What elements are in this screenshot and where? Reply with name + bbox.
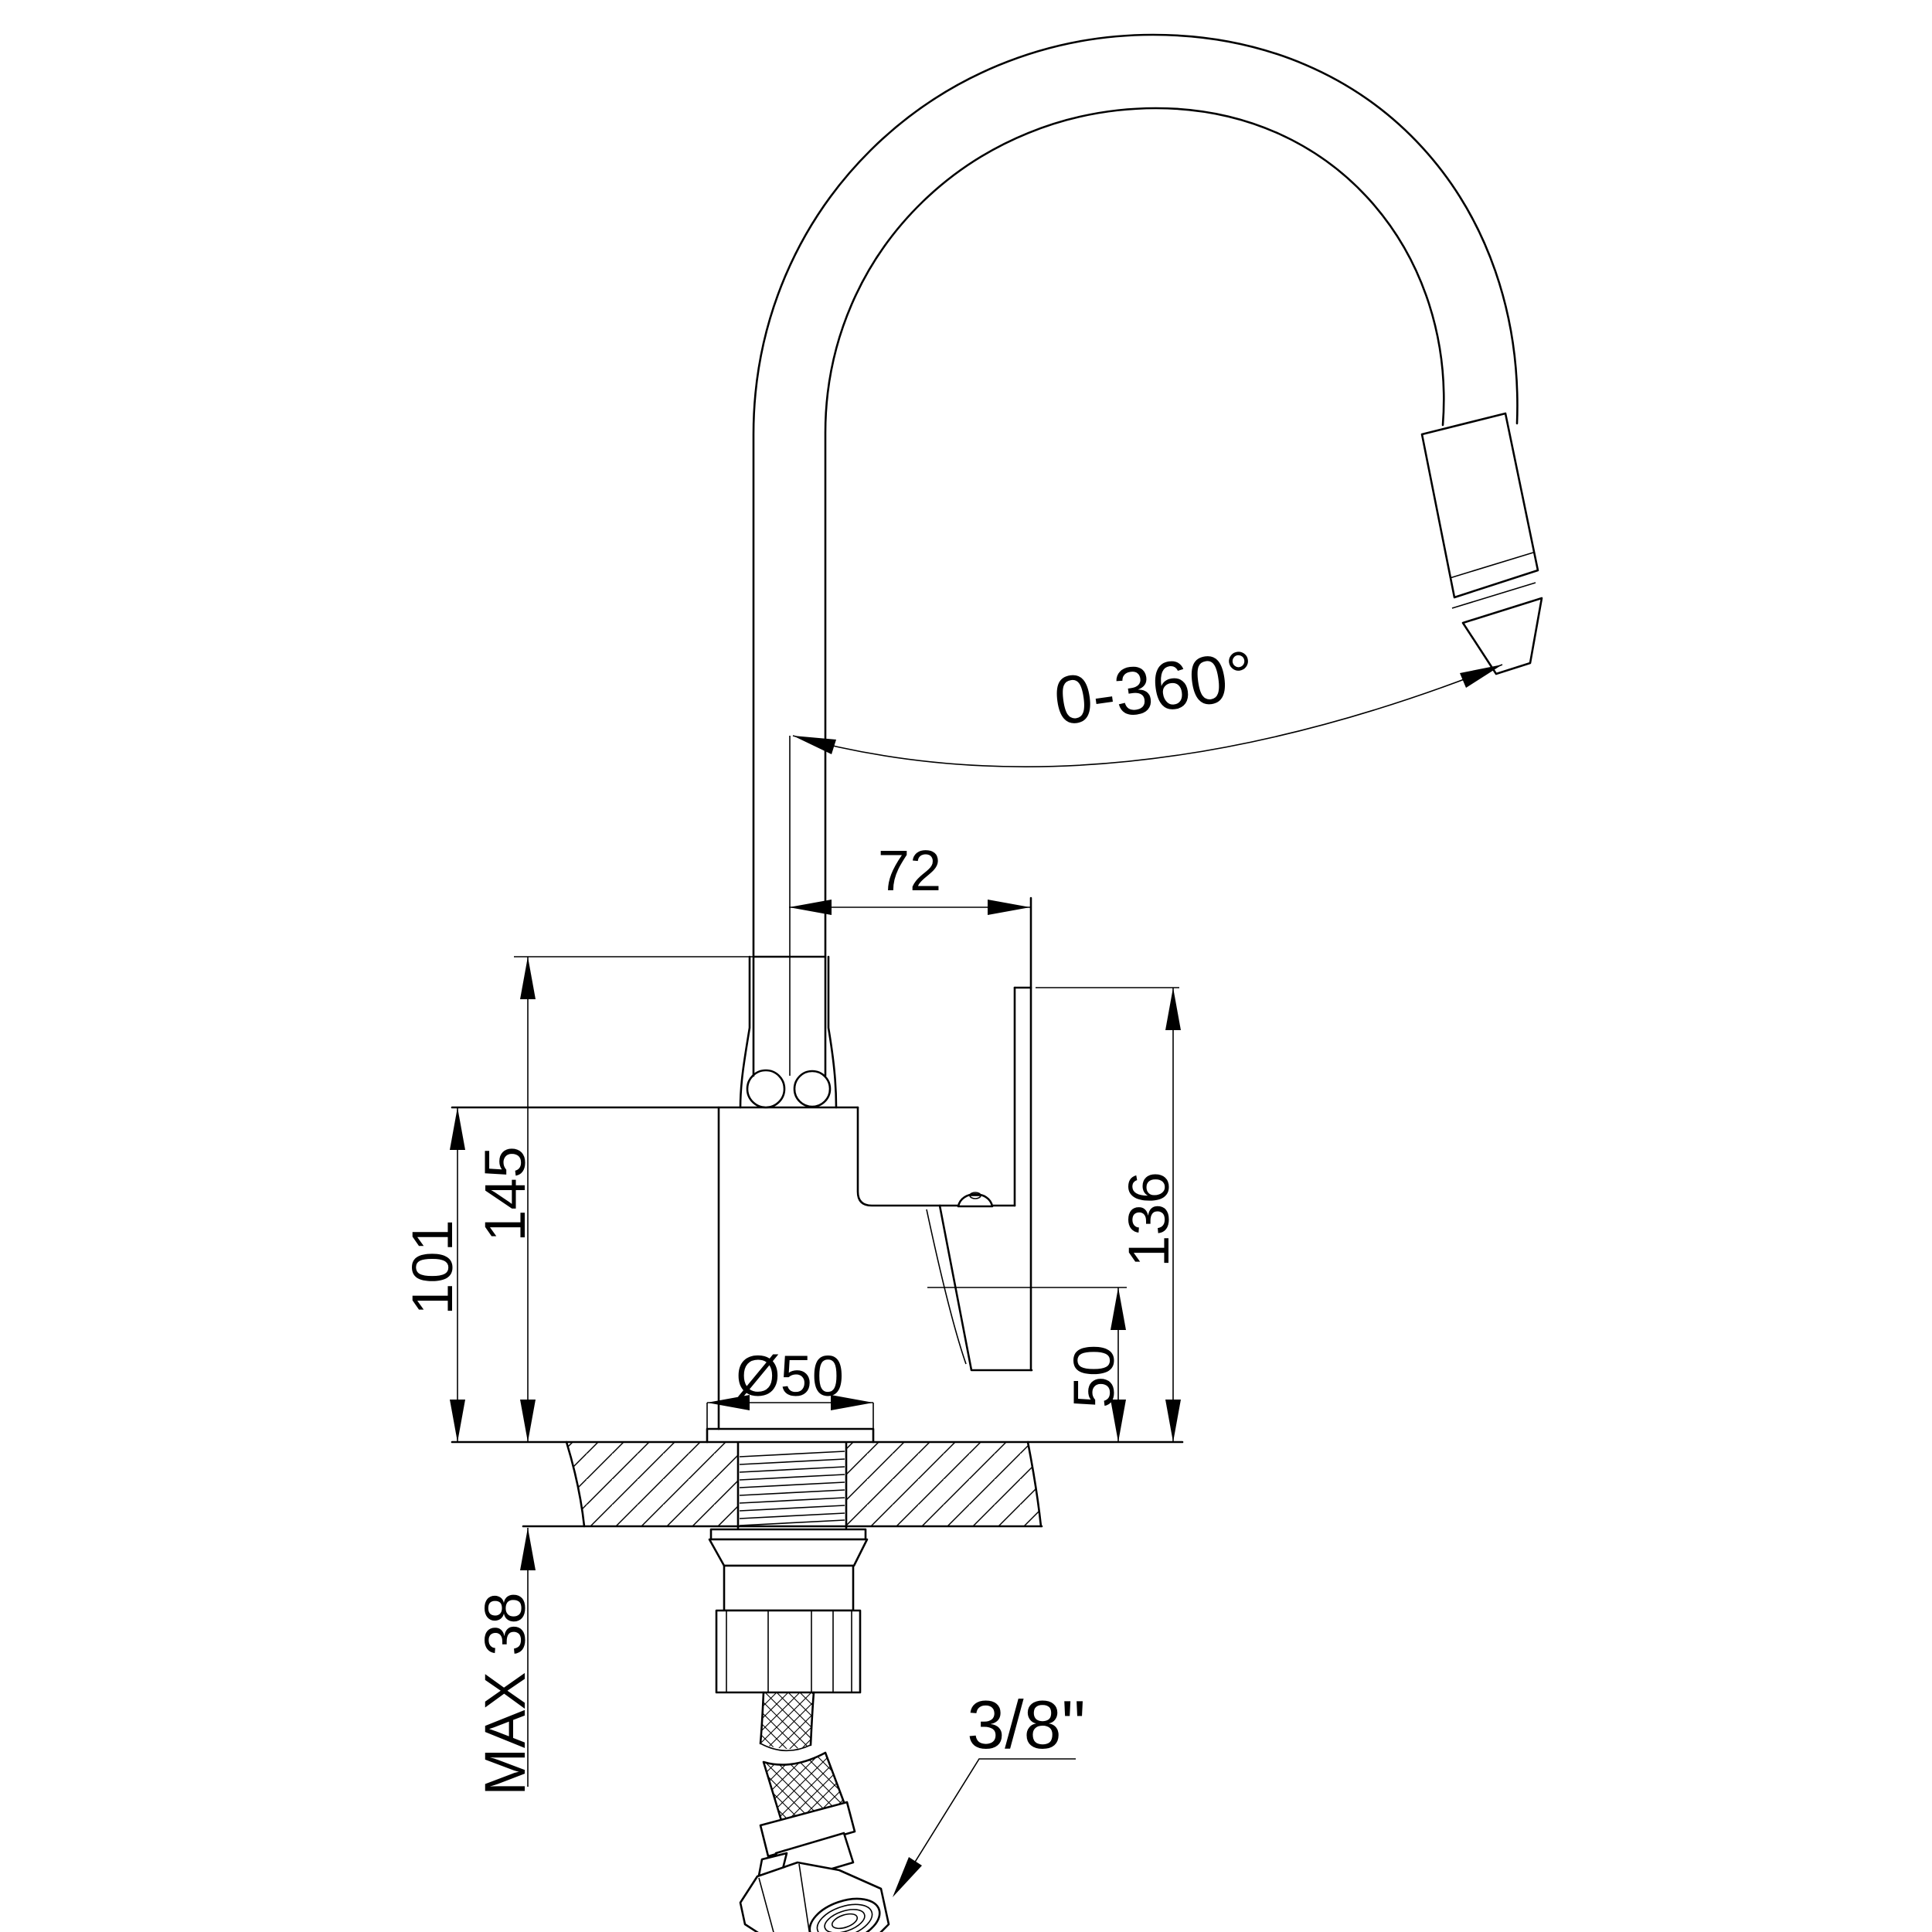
dim-72-label: 72 xyxy=(878,838,941,903)
mounting-nut xyxy=(716,1611,860,1692)
rotation-arrow-left xyxy=(793,736,836,754)
technical-drawing-page: 0-360° 72 145 101 136 50 xyxy=(0,0,1932,1932)
leader-3-8 xyxy=(893,1759,1076,1897)
dim-50-label: 50 xyxy=(1062,1345,1126,1408)
dim-145-label: 145 xyxy=(473,1146,537,1241)
mounting-washer xyxy=(711,1529,866,1539)
dim-101-label: 101 xyxy=(400,1219,464,1315)
shank-threads xyxy=(740,1451,845,1526)
dim-max38-label: MAX 38 xyxy=(473,1592,537,1795)
dim-dia50-label: Ø50 xyxy=(736,1344,844,1408)
dim-145 xyxy=(514,957,753,1442)
hose-size-label: 3/8" xyxy=(967,1686,1086,1763)
rotation-label: 0-360° xyxy=(1049,636,1260,740)
faucet-dimension-drawing: 0-360° 72 145 101 136 50 xyxy=(0,0,1932,1932)
aerator-tip xyxy=(1422,413,1542,674)
dim-136-label: 136 xyxy=(1117,1172,1181,1267)
handle-lever xyxy=(1015,898,1031,1370)
gooseneck-spout xyxy=(753,35,1517,1076)
mounting-cone xyxy=(709,1539,867,1566)
set-screw xyxy=(958,1192,992,1206)
supply-hose-upper xyxy=(760,1692,814,1750)
mounting-cylinder xyxy=(724,1566,853,1611)
base-flange xyxy=(707,1429,873,1442)
mounting-shank xyxy=(738,1442,846,1528)
spout-collar xyxy=(740,957,836,1107)
rotation-arrow-right xyxy=(1460,665,1502,688)
